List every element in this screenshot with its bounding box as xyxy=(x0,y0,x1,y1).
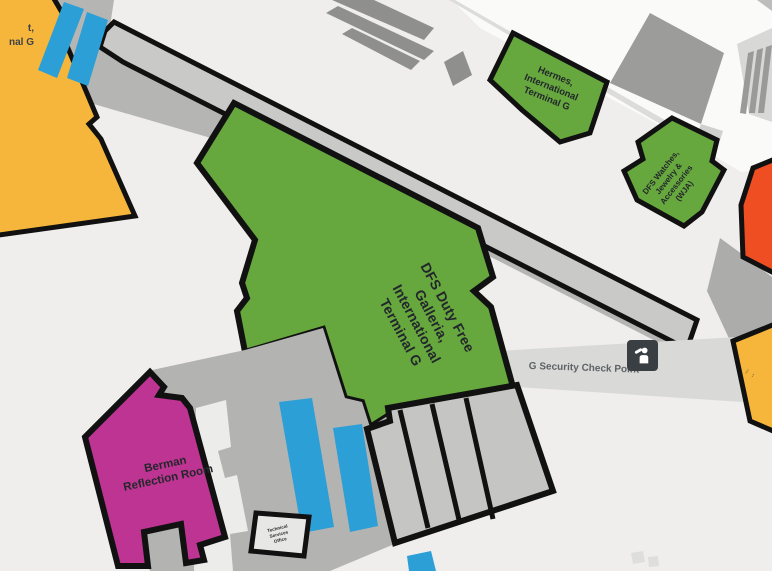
security-officer-icon[interactable] xyxy=(627,340,658,371)
small-structure xyxy=(631,551,645,564)
gate-area-yellow-right[interactable] xyxy=(733,322,772,434)
small-structure xyxy=(648,556,659,567)
airport-terminal-map[interactable]: DFS Duty Free Galleria, International Te… xyxy=(0,0,772,571)
escalator-blue[interactable] xyxy=(407,551,436,571)
orange-area[interactable] xyxy=(741,157,772,276)
technical-room-box[interactable] xyxy=(251,513,309,556)
dfs-watches-area[interactable] xyxy=(624,118,724,226)
small-structure xyxy=(444,51,472,86)
